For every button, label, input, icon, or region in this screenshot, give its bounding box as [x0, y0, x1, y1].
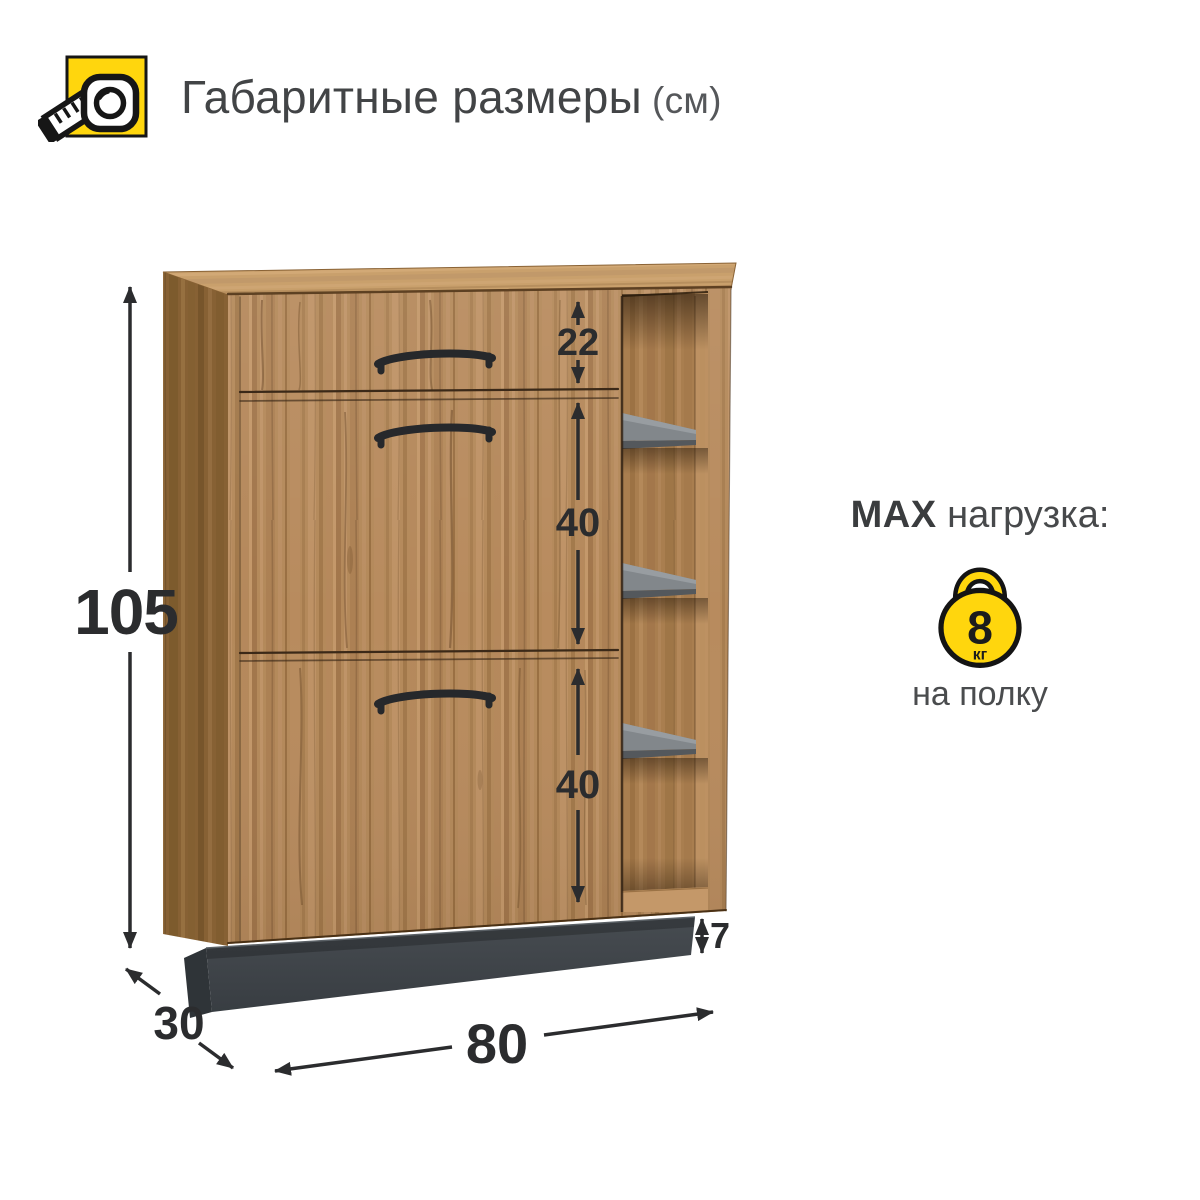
max-load-block: MAX нагрузка: 8 кг на полку [810, 495, 1150, 714]
kettlebell-icon: 8 кг [937, 553, 1023, 669]
max-load-label: нагрузка: [947, 494, 1109, 536]
max-load-unit: кг [973, 646, 988, 663]
infographic-page: Габаритные размеры(см) [0, 0, 1200, 1200]
cabinet [163, 263, 736, 1018]
dim-width-label: 80 [466, 1012, 528, 1075]
dim-plinth-label: 7 [710, 915, 730, 956]
column-bottom-panel [622, 887, 708, 912]
max-load-prefix: MAX [851, 494, 937, 536]
dim-depth-label: 30 [153, 997, 204, 1049]
max-load-note: на полку [810, 675, 1150, 714]
dim-height-label: 105 [74, 576, 178, 648]
open-shelf-column [622, 292, 708, 912]
max-load-title: MAX нагрузка: [810, 495, 1150, 537]
dim-upper-door-label: 40 [556, 501, 601, 545]
dim-drawer-label: 22 [557, 322, 599, 364]
dim-lower-door-label: 40 [556, 763, 601, 807]
